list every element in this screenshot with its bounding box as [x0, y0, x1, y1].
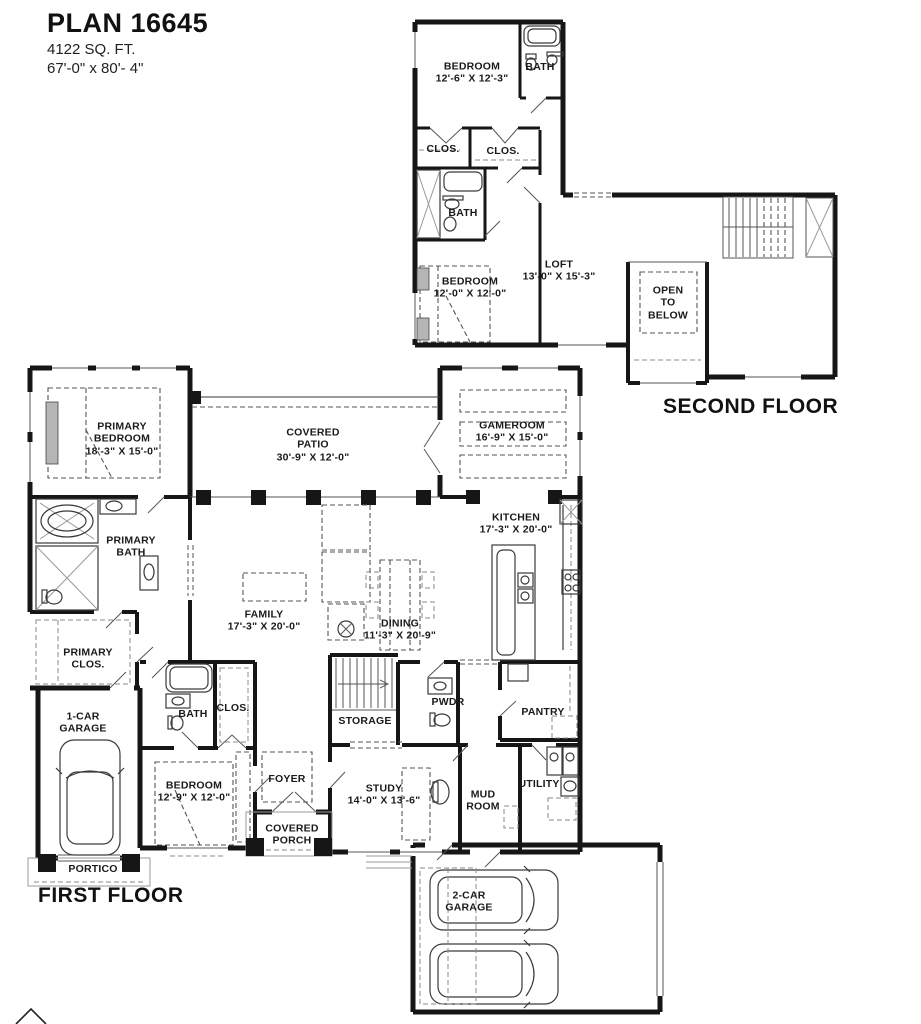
floor-plan-page: PLAN 16645 4122 SQ. FT. 67'-0" x 80'- 4"… [0, 0, 921, 1024]
plan-sqft: 4122 SQ. FT. [47, 41, 208, 58]
second-floor-stairs [723, 197, 833, 258]
porches-and-garages [28, 740, 558, 1008]
title-block: PLAN 16645 4122 SQ. FT. 67'-0" x 80'- 4" [47, 8, 208, 77]
first-floor-walls [30, 368, 663, 1012]
second-floor-walls [415, 22, 835, 383]
plan-overall-dims: 67'-0" x 80'- 4" [47, 60, 208, 77]
plan-title: PLAN 16645 [47, 8, 208, 39]
floor-plan-drawing [0, 0, 921, 1024]
second-floor-label: SECOND FLOOR [663, 395, 838, 419]
first-floor-openings [26, 364, 584, 867]
logo-chevron [16, 1009, 46, 1024]
first-floor-label: FIRST FLOOR [38, 884, 184, 908]
first-floor-stairs [332, 658, 396, 710]
